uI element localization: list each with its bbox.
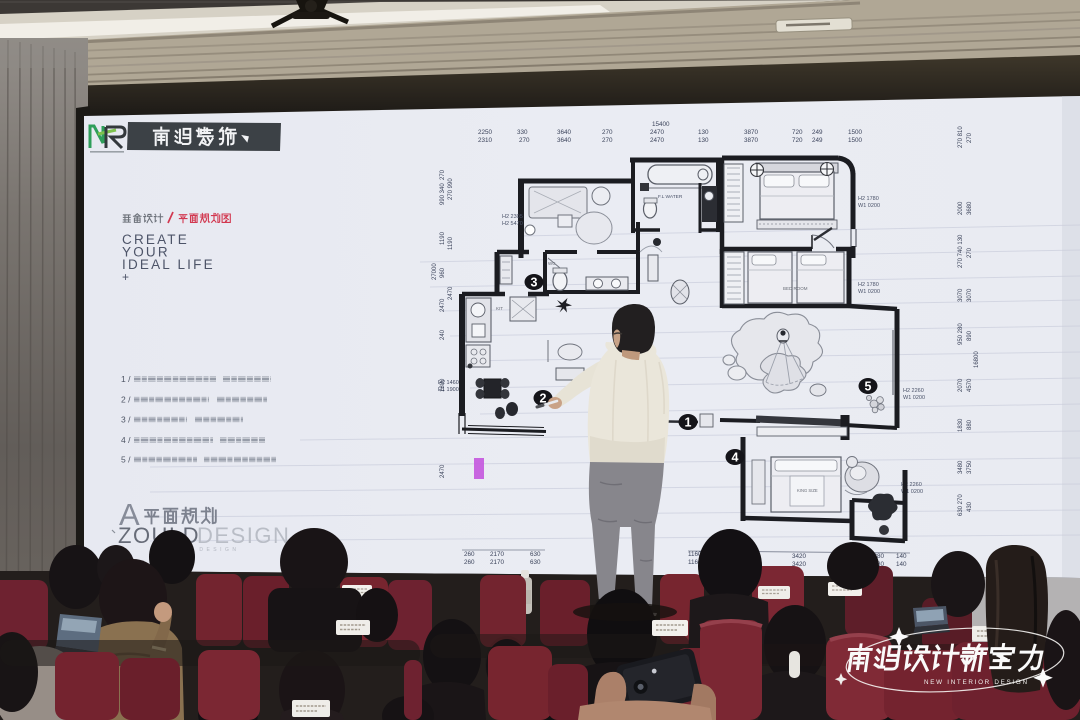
svg-text:3480: 3480 — [958, 460, 964, 474]
svg-text:2250: 2250 — [478, 129, 493, 136]
svg-text:F.L WATER: F.L WATER — [658, 194, 683, 200]
svg-text:W1 0200: W1 0200 — [858, 203, 880, 209]
svg-text:2470: 2470 — [650, 129, 665, 136]
svg-text:140: 140 — [896, 553, 907, 560]
svg-text:1190: 1190 — [448, 236, 454, 250]
svg-text:4570: 4570 — [967, 378, 973, 392]
svg-text:4: 4 — [732, 451, 739, 465]
svg-text:2070: 2070 — [958, 378, 964, 392]
svg-text:+: + — [122, 270, 131, 284]
svg-text:720: 720 — [792, 137, 803, 144]
svg-text:3: 3 — [531, 276, 538, 290]
svg-text:430: 430 — [967, 501, 973, 512]
svg-text:270 810: 270 810 — [958, 126, 964, 148]
svg-text:2470: 2470 — [650, 137, 665, 144]
svg-text:3870: 3870 — [744, 129, 759, 136]
svg-text:249: 249 — [812, 129, 823, 136]
svg-text:H2 1780: H2 1780 — [858, 282, 879, 288]
svg-text:5: 5 — [865, 380, 872, 394]
svg-text:2310: 2310 — [478, 137, 493, 144]
svg-text:270: 270 — [602, 129, 613, 136]
svg-text:3640: 3640 — [557, 137, 572, 144]
svg-text:960: 960 — [440, 267, 446, 278]
svg-text:3420: 3420 — [792, 553, 807, 560]
svg-text:270: 270 — [440, 169, 446, 180]
svg-text:KIT: KIT — [496, 306, 503, 311]
svg-text:DESIGN: DESIGN — [197, 523, 290, 548]
svg-text:270: 270 — [602, 137, 613, 144]
svg-text:IDEAL LIFE: IDEAL LIFE — [122, 257, 215, 272]
svg-text:H2 2305: H2 2305 — [502, 214, 523, 220]
svg-text:260: 260 — [464, 551, 475, 558]
svg-text:3870: 3870 — [744, 137, 759, 144]
svg-text:270 990: 270 990 — [448, 178, 454, 200]
svg-text:H1 1900: H1 1900 — [438, 387, 459, 393]
svg-text:NEW INTERIOR DESIGN: NEW INTERIOR DESIGN — [924, 679, 1029, 686]
svg-text:3070: 3070 — [958, 288, 964, 302]
svg-text:260: 260 — [464, 559, 475, 566]
svg-text:270: 270 — [967, 247, 973, 258]
svg-text:2170: 2170 — [490, 551, 505, 558]
svg-text:249: 249 — [812, 137, 823, 144]
svg-text:W1 0200: W1 0200 — [858, 289, 880, 295]
svg-text:270: 270 — [519, 137, 530, 144]
svg-text:950 280: 950 280 — [958, 323, 964, 345]
svg-text:130: 130 — [698, 137, 709, 144]
svg-text:720: 720 — [792, 129, 803, 136]
svg-text:H2 5470: H2 5470 — [502, 221, 523, 227]
svg-text:3750: 3750 — [967, 460, 973, 474]
svg-text:KING SIZE: KING SIZE — [797, 488, 818, 493]
svg-text:630: 630 — [530, 559, 541, 566]
svg-text:15400: 15400 — [652, 121, 670, 128]
svg-text:1190: 1190 — [440, 231, 446, 245]
svg-text:2 /: 2 / — [121, 395, 131, 405]
svg-text:2470: 2470 — [440, 298, 446, 312]
svg-text:2000: 2000 — [958, 201, 964, 215]
svg-text:W1 0200: W1 0200 — [903, 395, 925, 401]
svg-text:2470: 2470 — [440, 464, 446, 478]
svg-text:5 /: 5 / — [121, 455, 131, 465]
svg-text:270 740 130: 270 740 130 — [958, 234, 964, 268]
svg-text:630 270: 630 270 — [958, 494, 964, 516]
svg-text:1 /: 1 / — [121, 374, 131, 384]
svg-text:4 /: 4 / — [121, 435, 131, 445]
svg-text:3680: 3680 — [967, 201, 973, 215]
svg-text:27000: 27000 — [432, 263, 438, 280]
svg-text:1500: 1500 — [848, 129, 863, 136]
svg-text:890: 890 — [967, 330, 973, 341]
svg-text:H2 2260: H2 2260 — [903, 388, 924, 394]
svg-text:1830: 1830 — [958, 418, 964, 432]
svg-text:3 /: 3 / — [121, 415, 131, 425]
svg-text:270: 270 — [967, 132, 973, 143]
svg-text:WC: WC — [548, 261, 556, 266]
svg-text:1: 1 — [685, 416, 692, 430]
svg-text:990 340: 990 340 — [440, 183, 446, 205]
svg-text:BED ROOM: BED ROOM — [783, 286, 808, 291]
svg-text:3640: 3640 — [557, 129, 572, 136]
svg-text:880: 880 — [967, 419, 973, 430]
svg-text:H2 1460: H2 1460 — [438, 380, 459, 386]
svg-text:16800: 16800 — [974, 351, 980, 368]
svg-text:630: 630 — [530, 551, 541, 558]
svg-text:H2 1780: H2 1780 — [858, 196, 879, 202]
svg-text:130: 130 — [698, 129, 709, 136]
svg-text:1500: 1500 — [848, 137, 863, 144]
svg-text:240: 240 — [440, 329, 446, 340]
svg-text:2470: 2470 — [448, 286, 454, 300]
svg-text:140: 140 — [896, 561, 907, 568]
svg-text:3070: 3070 — [967, 288, 973, 302]
svg-text:2170: 2170 — [490, 559, 505, 566]
svg-text:330: 330 — [517, 129, 528, 136]
